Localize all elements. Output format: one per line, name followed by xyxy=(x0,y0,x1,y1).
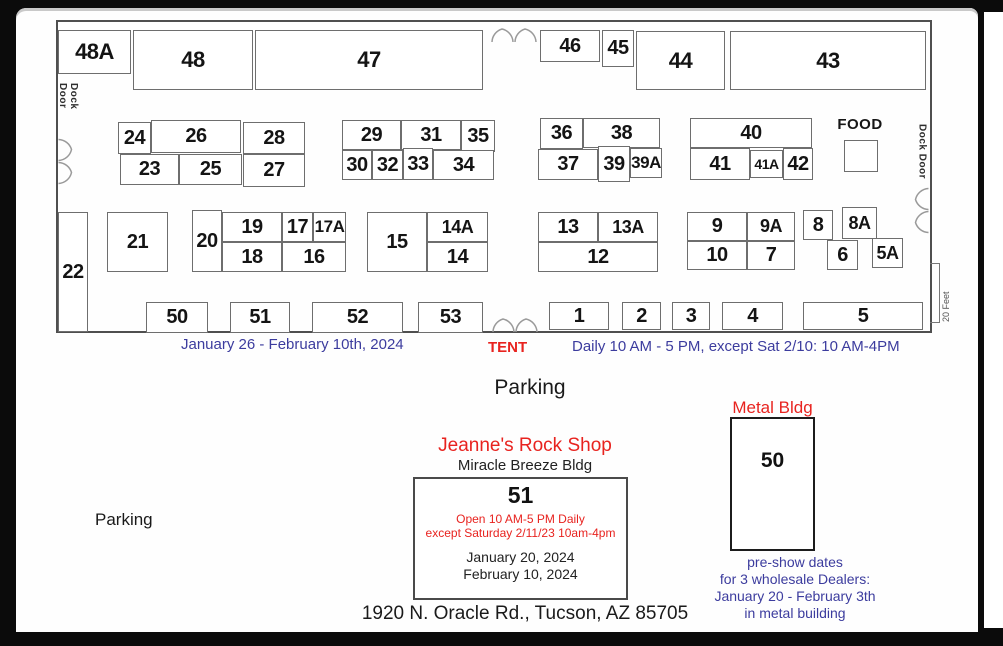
booth-28: 28 xyxy=(243,122,305,154)
booth-1: 1 xyxy=(549,302,609,330)
metal-bldg-label: Metal Bldg xyxy=(690,398,855,418)
booth-17: 17 xyxy=(282,212,313,242)
preshow-line: pre-show dates xyxy=(685,554,905,571)
booth-6: 6 xyxy=(827,240,858,270)
booth-50: 50 xyxy=(146,302,208,333)
booth-5A: 5A xyxy=(872,238,903,268)
booth-5: 5 xyxy=(803,302,923,330)
double-door-icon xyxy=(53,139,74,185)
booth-31: 31 xyxy=(401,120,461,150)
booth-41A: 41A xyxy=(750,150,783,178)
show-floor-map: 48A4847464544432426282325272931353032333… xyxy=(0,0,1003,646)
miracle-hours: Open 10 AM-5 PM Daily except Saturday 2/… xyxy=(426,512,616,540)
booth-46: 46 xyxy=(540,30,600,62)
parking-label-left: Parking xyxy=(95,510,153,530)
booth-33: 33 xyxy=(403,148,433,180)
shop-name: Jeanne's Rock Shop xyxy=(375,435,675,457)
booth-51: 51 xyxy=(230,302,290,333)
booth-9: 9 xyxy=(687,212,747,241)
booth-13A: 13A xyxy=(598,212,658,242)
preshow-note: pre-show dates for 3 wholesale Dealers: … xyxy=(685,554,905,622)
miracle-date-end: February 10, 2024 xyxy=(463,566,577,583)
booth-47: 47 xyxy=(255,30,483,90)
metal-booth-number: 50 xyxy=(761,449,784,549)
booth-27: 27 xyxy=(243,154,305,187)
double-door-icon xyxy=(492,317,538,338)
miracle-date-start: January 20, 2024 xyxy=(463,549,577,566)
booth-42: 42 xyxy=(783,148,813,180)
booth-food xyxy=(844,140,878,172)
preshow-line: for 3 wholesale Dealers: xyxy=(685,571,905,588)
booth-44: 44 xyxy=(636,31,725,90)
booth-16: 16 xyxy=(282,242,346,272)
booth-22: 22 xyxy=(58,212,88,332)
miracle-hours-line2: except Saturday 2/11/23 10am-4pm xyxy=(426,526,616,540)
booth-18: 18 xyxy=(222,242,282,272)
booth-4: 4 xyxy=(722,302,783,330)
booth-41: 41 xyxy=(690,148,750,180)
double-door-icon xyxy=(914,188,935,234)
booth-34: 34 xyxy=(433,150,494,180)
booth-8A: 8A xyxy=(842,207,877,239)
booth-35: 35 xyxy=(461,120,495,152)
miracle-booth-number: 51 xyxy=(508,482,534,509)
venue-address: 1920 N. Oracle Rd., Tucson, AZ 85705 xyxy=(340,603,710,625)
tent-label: TENT xyxy=(488,339,527,356)
show-dates-note: January 26 - February 10th, 2024 xyxy=(181,336,404,353)
scale-bracket xyxy=(930,263,940,323)
booth-48A: 48A xyxy=(58,30,131,74)
miracle-hours-line1: Open 10 AM-5 PM Daily xyxy=(426,512,616,526)
booth-23: 23 xyxy=(120,154,179,185)
show-hours-note: Daily 10 AM - 5 PM, except Sat 2/10: 10 … xyxy=(572,338,900,355)
booth-39A: 39A xyxy=(630,148,662,178)
booth-48: 48 xyxy=(133,30,253,90)
booth-45: 45 xyxy=(602,30,634,67)
double-door-icon xyxy=(491,27,537,48)
booth-14A: 14A xyxy=(427,212,488,242)
booth-37: 37 xyxy=(538,149,598,180)
booth-12: 12 xyxy=(538,242,658,272)
booth-25: 25 xyxy=(179,154,242,185)
booth-3: 3 xyxy=(672,302,710,330)
booth-7: 7 xyxy=(747,241,795,270)
food-area-label: FOOD xyxy=(830,116,890,133)
booth-53: 53 xyxy=(418,302,483,333)
booth-13: 13 xyxy=(538,212,598,242)
dock-door-left-label: Dock Door xyxy=(58,83,78,137)
dock-door-right-label: Dock Door xyxy=(912,123,932,181)
preshow-line: January 20 - February 3th xyxy=(685,588,905,605)
miracle-breeze-bldg-label: Miracle Breeze Bldg xyxy=(375,457,675,474)
booth-17A: 17A xyxy=(313,212,346,242)
booth-29: 29 xyxy=(342,120,401,150)
booth-14: 14 xyxy=(427,242,488,272)
booth-43: 43 xyxy=(730,31,926,90)
miracle-dates: January 20, 2024 February 10, 2024 xyxy=(463,549,577,583)
booth-10: 10 xyxy=(687,241,747,270)
booth-30: 30 xyxy=(342,150,372,180)
booth-39: 39 xyxy=(598,146,630,182)
booth-15: 15 xyxy=(367,212,427,272)
scale-label: 20 Feet xyxy=(941,266,951,322)
booth-38: 38 xyxy=(583,118,660,148)
preshow-line: in metal building xyxy=(685,605,905,622)
booth-26: 26 xyxy=(151,120,241,153)
booth-9A: 9A xyxy=(747,212,795,241)
booth-20: 20 xyxy=(192,210,222,272)
booth-2: 2 xyxy=(622,302,661,330)
booth-24: 24 xyxy=(118,122,151,154)
booth-40: 40 xyxy=(690,118,812,148)
booth-21: 21 xyxy=(107,212,168,272)
booth-36: 36 xyxy=(540,118,583,149)
booth-52: 52 xyxy=(312,302,403,333)
booth-19: 19 xyxy=(222,212,282,242)
booth-8: 8 xyxy=(803,210,833,240)
metal-building: 50 xyxy=(730,417,815,551)
booth-32: 32 xyxy=(372,150,403,180)
miracle-breeze-building: 51 Open 10 AM-5 PM Daily except Saturday… xyxy=(413,477,628,600)
parking-label-center: Parking xyxy=(430,376,630,400)
